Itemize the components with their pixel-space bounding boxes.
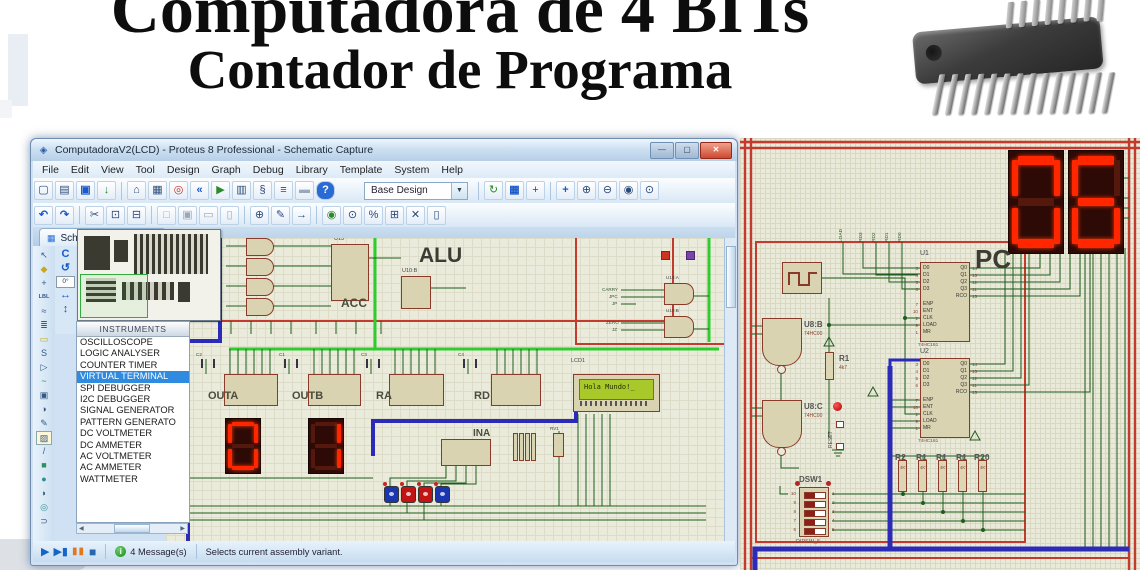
marker-tool-icon[interactable]: ⊃ [36, 515, 52, 529]
u1-d-pins: D0 D1 D2 D3 [923, 265, 929, 293]
minimize-button[interactable]: — [650, 142, 674, 159]
lcd-text: Hola Mundo!_ [580, 380, 653, 391]
grid-toggle-icon[interactable]: ▦ [505, 181, 524, 200]
segment-g [1078, 198, 1114, 207]
reset-button [833, 402, 842, 411]
segment-g [232, 444, 254, 449]
left-edge-artifact [8, 34, 28, 106]
u2-q-pins: Q0 Q1 Q2 Q3 [955, 361, 967, 389]
instruments-panel: INSTRUMENTS OSCILLOSCOPE LOGIC ANALYSER … [76, 321, 190, 523]
instrument-logic-analyser[interactable]: LOGIC ANALYSER [77, 348, 189, 359]
terminal-load: LOAD [839, 206, 844, 242]
segment-e [1012, 208, 1018, 244]
segment-d [232, 466, 254, 471]
instruments-header: INSTRUMENTS [77, 322, 189, 337]
u2-d-pin-numbers: 3 4 5 6 [906, 361, 918, 389]
orientation-toolbar: C ↺ 0° ↔ ↕ [55, 246, 76, 334]
rd-label: RD [474, 390, 490, 402]
u2-part: 74HC161 [918, 439, 938, 444]
segment-c [1114, 208, 1120, 244]
instrument-counter-timer[interactable]: COUNTER TIMER [77, 360, 189, 371]
lcd1-ref: LCD1 [571, 358, 585, 364]
menu-library[interactable]: Library [296, 164, 328, 176]
u1-rco-number: 15 [972, 293, 984, 300]
pullup-value-2: 4K7 [920, 465, 927, 470]
home-page-icon[interactable]: ⌂ [127, 181, 146, 200]
led-blue-1[interactable] [384, 486, 399, 503]
menu-debug[interactable]: Debug [253, 164, 284, 176]
c2-label: C2 [196, 352, 202, 357]
instrument-dc-ammeter[interactable]: DC AMMETER [77, 440, 189, 451]
capacitor-c3[interactable] [366, 359, 380, 368]
segment-e [1072, 208, 1078, 244]
scroll-right-icon[interactable]: ▶ [180, 525, 187, 532]
rv1-label: RV1 [550, 426, 559, 431]
new-project-icon[interactable]: ▢ [34, 181, 53, 200]
search-tag-icon[interactable]: ⊙ [343, 206, 362, 225]
instrument-pattern-generator[interactable]: PATTERN GENERATO [77, 417, 189, 428]
segment-f [1012, 160, 1018, 196]
canvas-vertical-scrollbar[interactable] [724, 238, 736, 541]
segment-f [228, 424, 232, 443]
menu-bar: File Edit View Tool Design Graph Debug L… [33, 161, 735, 178]
block-delete-icon[interactable]: ▯ [220, 206, 239, 225]
instrument-ac-voltmeter[interactable]: AC VOLTMETER [77, 451, 189, 462]
segment-g [315, 444, 337, 449]
segment-a [1078, 156, 1114, 165]
pc-7seg-tens [1008, 150, 1064, 254]
bom-icon[interactable]: § [253, 181, 272, 200]
r1-value: 4k7 [839, 365, 847, 371]
program-counter-zoom-panel: LOAD RD3 RD2 RD1 RD0 PC U1 D0 D1 D2 D3 3… [740, 138, 1140, 570]
cut-icon[interactable]: ✂ [85, 206, 104, 225]
u8b-nand-gate [762, 318, 802, 366]
tab-schematic-icon: ▦ [47, 233, 56, 244]
wire-autorouter-icon[interactable]: ◉ [322, 206, 341, 225]
schematic-capture-icon[interactable]: ▦ [148, 181, 167, 200]
led-blue-2[interactable] [435, 486, 450, 503]
signal-zero: ZERO [606, 320, 619, 325]
rewind-icon[interactable]: « [190, 181, 209, 200]
pullup-ref-4: R1 [956, 452, 967, 462]
segment-b [1054, 160, 1060, 196]
window-titlebar[interactable]: ◈ ComputadoraV2(LCD) - Proteus 8 Profess… [31, 139, 737, 161]
capacitor-c2[interactable] [201, 359, 215, 368]
zoom-all-icon[interactable]: ◉ [619, 181, 638, 200]
outb-7seg-display[interactable] [308, 418, 344, 474]
u19a-gate[interactable] [664, 283, 694, 305]
banner: Computadora de 4 BITs Contador de Progra… [40, 0, 880, 98]
u2-q-pin-numbers: 14 13 12 11 [972, 361, 984, 389]
u1-rco-pin: RCO [953, 293, 967, 300]
remove-sheet-icon[interactable]: ✕ [406, 206, 425, 225]
undo-icon[interactable]: ↶ [34, 206, 53, 225]
terminal-mode-icon[interactable]: S [36, 347, 52, 361]
pullup-value-4: 4K7 [960, 465, 967, 470]
u19b-gate[interactable] [664, 316, 694, 338]
menu-edit[interactable]: Edit [71, 164, 89, 176]
ra-register-chip[interactable] [389, 374, 444, 406]
component-mode-icon[interactable]: ▭ [36, 333, 52, 347]
instrument-oscilloscope[interactable]: OSCILLOSCOPE [77, 337, 189, 348]
rotation-angle-field[interactable]: 0° [56, 276, 75, 288]
segment-d [1078, 239, 1114, 248]
u1-ctrl-pin-numbers: 7 10 2 9 1 [906, 301, 918, 336]
clock-source [782, 262, 822, 294]
line-tool-icon[interactable]: / [36, 445, 52, 459]
reset-label: RESET [828, 422, 834, 448]
stop-button[interactable]: ■ [89, 544, 96, 560]
dsw1-part: DIPSW_5 [796, 539, 820, 545]
dsw1-pins-left: 10 9 8 7 6 [784, 489, 796, 534]
minimap-viewport[interactable] [80, 274, 148, 318]
design-overview-minimap[interactable] [77, 229, 221, 321]
outa-label: OUTA [208, 390, 238, 402]
terminal-rd2: RD2 [872, 214, 877, 242]
pc-7seg-ones [1068, 150, 1124, 254]
and-gate-1[interactable] [246, 238, 274, 256]
pullup-ref-3: R1 [936, 452, 947, 462]
schematic-canvas[interactable]: U13 U10:B ACC ALU U19:A U19:B CARRY JPC … [166, 238, 724, 541]
menu-system[interactable]: System [394, 164, 429, 176]
graph-mode-icon[interactable]: ~ [36, 375, 52, 389]
u13-ref: U13 [334, 238, 344, 242]
mirror-vertical-icon[interactable]: ↕ [63, 303, 69, 316]
paste-icon[interactable]: ⊟ [127, 206, 146, 225]
terminal-rd1: RD1 [885, 214, 890, 242]
assembly-variant-dropdown[interactable]: Base Design ▼ [364, 182, 468, 200]
step-button[interactable]: ▶▮ [53, 544, 68, 560]
pullup-value-1: 4K7 [900, 465, 907, 470]
segment-d [315, 466, 337, 471]
segment-a [1018, 156, 1054, 165]
segment-g [1018, 198, 1054, 207]
goto-sheet-icon[interactable]: ▯ [427, 206, 446, 225]
pan-icon[interactable]: + [556, 181, 575, 200]
dip-ic-chip-photo [895, 2, 1130, 130]
r1-resistor [825, 352, 834, 380]
menu-file[interactable]: File [42, 164, 59, 176]
property-assignment-icon[interactable]: % [364, 206, 383, 225]
box-tool-icon[interactable]: ■ [36, 459, 52, 473]
simulation-status-bar: ▶ ▶▮ ▮▮ ■ i 4 Message(s) Selects current… [33, 541, 735, 562]
pullup-value-5: 4K7 [980, 465, 987, 470]
u8c-ref: U8:C [804, 402, 823, 411]
instruments-scrollbar[interactable]: ◀ ▶ [76, 523, 188, 534]
block-copy-icon[interactable]: □ [157, 206, 176, 225]
u10b-ref: U10:B [402, 268, 417, 274]
lcd-display[interactable]: Hola Mundo!_ [573, 374, 660, 412]
proteus-logo-icon: ◈ [37, 144, 50, 157]
make-device-icon[interactable]: ✎ [271, 206, 290, 225]
acc-label: ACC [341, 296, 367, 310]
messages-count[interactable]: 4 Message(s) [130, 547, 186, 557]
dsw1-pins-right: 1 2 3 4 5 [832, 489, 842, 534]
and-gate-4[interactable] [246, 298, 274, 316]
outb-label: OUTB [292, 390, 323, 402]
u1-d-pin-numbers: 3 4 5 6 [906, 265, 918, 293]
variant-value: Base Design [371, 185, 428, 196]
pullup-ref-1: R2 [895, 452, 906, 462]
pullup-ref-2: R1 [916, 452, 927, 462]
rv1-potentiometer[interactable] [553, 433, 564, 457]
resistor-pack[interactable] [513, 433, 535, 459]
virtual-instrument-mode-icon[interactable]: ▨ [36, 431, 52, 445]
menu-view[interactable]: View [101, 164, 124, 176]
menu-design[interactable]: Design [167, 164, 200, 176]
menu-tool[interactable]: Tool [136, 164, 155, 176]
path-tool-icon[interactable]: ◎ [36, 501, 52, 515]
menu-help[interactable]: Help [441, 164, 463, 176]
capacitor-c1[interactable] [284, 359, 298, 368]
save-project-icon[interactable]: ▣ [76, 181, 95, 200]
dsw1-dip-switch [799, 487, 829, 537]
window-title: ComputadoraV2(LCD) - Proteus 8 Professio… [55, 144, 373, 156]
instrument-spi-debugger[interactable]: SPI DEBUGGER [77, 383, 189, 394]
scroll-left-icon[interactable]: ◀ [77, 525, 84, 532]
mode-toolbar: ↖ ◆ + LBL ≈ ≣ ▭ S ▷ ~ ▣ ◑ ✎ ▨ / ■ ● ◗ ◎ … [33, 246, 55, 541]
segment-c [1054, 208, 1060, 244]
terminal-rd0: RD0 [898, 214, 903, 242]
segment-d [1018, 239, 1054, 248]
u2-ctrl-pins: ENP ENT CLK LOAD MR [923, 397, 937, 432]
ina-buffer-chip[interactable] [441, 439, 491, 466]
text-script-mode-icon[interactable]: LBL [36, 291, 52, 305]
signal-jp: JP [612, 301, 617, 306]
mirror-horizontal-icon[interactable]: ↔ [60, 289, 71, 302]
signal-jz: JZ [612, 327, 617, 332]
device-pin-mode-icon[interactable]: ▷ [36, 361, 52, 375]
zoom-in-icon[interactable]: ⊕ [577, 181, 596, 200]
menu-graph[interactable]: Graph [212, 164, 241, 176]
and-gate-3[interactable] [246, 278, 274, 296]
instrument-virtual-terminal[interactable]: VIRTUAL TERMINAL [77, 371, 189, 382]
open-project-icon[interactable]: ▤ [55, 181, 74, 200]
zoom-area-icon[interactable]: ⊙ [640, 181, 659, 200]
ina-label: INA [473, 428, 490, 439]
pullup-value-3: 4K7 [940, 465, 947, 470]
instrument-dc-voltmeter[interactable]: DC VOLTMETER [77, 428, 189, 439]
u2-ctrl-pin-numbers: 7 10 2 9 1 [906, 397, 918, 432]
led-red-2[interactable] [418, 486, 433, 503]
square-wave-icon [783, 263, 823, 295]
u2-ref: U2 [920, 348, 929, 355]
play-button[interactable]: ▶ [41, 544, 49, 560]
lcd-screen: Hola Mundo!_ [579, 379, 654, 400]
help-icon[interactable]: ? [316, 181, 335, 200]
instrument-wattmeter[interactable]: WATTMETER [77, 474, 189, 485]
dropdown-arrow-icon[interactable]: ▼ [451, 183, 467, 199]
status-hint: Selects current assembly variant. [206, 547, 343, 557]
ra-label: RA [376, 390, 392, 402]
capacitor-c4[interactable] [463, 359, 477, 368]
maximize-button[interactable]: ▢ [675, 142, 699, 159]
bus-mode-icon[interactable]: ≈ [36, 305, 52, 319]
segment-c [337, 449, 341, 468]
main-toolbar: ▢ ▤ ▣ ↓ ⌂ ▦ ◎ « ▶ ▥ § ≡ ▬ ? Base Design … [33, 178, 735, 203]
pullup-ref-5: R20 [974, 452, 990, 462]
u8c-bubble [777, 447, 786, 456]
segment-e [311, 449, 315, 468]
signal-carry: CARRY [602, 287, 618, 292]
segment-e [228, 449, 232, 468]
pause-button[interactable]: ▮▮ [72, 544, 85, 560]
u8b-part: 74HC00 [804, 331, 822, 337]
segment-a [232, 422, 254, 427]
r1-ref: R1 [839, 354, 849, 363]
c4-label: C4 [458, 352, 464, 357]
u8c-nand-gate [762, 400, 802, 448]
dsw1-dot-left [795, 481, 800, 486]
menu-template[interactable]: Template [340, 164, 383, 176]
tape-recorder-mode-icon[interactable]: ▣ [36, 389, 52, 403]
generator-mode-icon[interactable]: ◑ [36, 403, 52, 417]
segment-a [315, 422, 337, 427]
instrument-signal-generator[interactable]: SIGNAL GENERATOR [77, 405, 189, 416]
arc-tool-icon[interactable]: ◗ [36, 487, 52, 501]
and-gate-2[interactable] [246, 258, 274, 276]
packaging-tool-icon[interactable]: → [292, 206, 311, 225]
circle-tool-icon[interactable]: ● [36, 473, 52, 487]
edit-toolbar: ↶ ↷ ✂ ⊡ ⊟ □ ▣ ▭ ▯ ⊕ ✎ → ◉ ⊙ % ⊞ ✕ ▯ [33, 203, 735, 227]
c3-label: C3 [361, 352, 367, 357]
properties-icon[interactable]: ≡ [274, 181, 293, 200]
c1-label: C1 [279, 352, 285, 357]
redraw-icon[interactable]: ↻ [484, 181, 503, 200]
left-edge-artifact-2 [0, 100, 12, 118]
u2-rco-number: 15 [972, 389, 984, 396]
banner-title-line2: Contador de Programa [40, 42, 880, 98]
design-explorer-icon[interactable]: ▥ [232, 181, 251, 200]
run-icon[interactable]: ▶ [211, 181, 230, 200]
junction-dot-mode-icon[interactable]: ◆ [36, 263, 52, 277]
led-red-1[interactable] [401, 486, 416, 503]
refresh-icon[interactable]: C [62, 248, 70, 261]
u1-ref: U1 [920, 250, 929, 257]
terminal-rd3: RD3 [859, 214, 864, 242]
segment-b [254, 424, 258, 443]
pcb-layout-icon[interactable]: ◎ [169, 181, 188, 200]
purple-indicator [686, 251, 695, 260]
new-sheet-icon[interactable]: ⊞ [385, 206, 404, 225]
block-move-icon[interactable]: ▣ [178, 206, 197, 225]
u1-q-pin-numbers: 14 13 12 11 [972, 265, 984, 293]
rotate-ccw-icon[interactable]: ↺ [61, 262, 70, 275]
outa-7seg-display[interactable] [225, 418, 261, 474]
u8b-ref: U8:B [804, 320, 823, 329]
signal-jpc: JPC [609, 294, 618, 299]
copy-icon[interactable]: ⊡ [106, 206, 125, 225]
alu-label: ALU [419, 244, 462, 268]
close-button[interactable]: ✕ [700, 142, 732, 159]
instrument-ac-ammeter[interactable]: AC AMMETER [77, 462, 189, 473]
wire-label-mode-icon[interactable]: + [36, 277, 52, 291]
rd-register-chip[interactable] [491, 374, 541, 406]
import-project-icon[interactable]: ↓ [97, 181, 116, 200]
segment-f [1072, 160, 1078, 196]
u10b-chip[interactable] [401, 276, 431, 309]
segment-c [254, 449, 258, 468]
dsw1-ref: DSW1 [799, 475, 822, 484]
zoom-out-icon[interactable]: ⊖ [598, 181, 617, 200]
u8b-bubble [777, 365, 786, 374]
instrument-i2c-debugger[interactable]: I2C DEBUGGER [77, 394, 189, 405]
proteus-window: ◈ ComputadoraV2(LCD) - Proteus 8 Profess… [30, 138, 738, 566]
selection-mode-icon[interactable]: ↖ [36, 249, 52, 263]
banner-title-line1: Computadora de 4 BITs [40, 0, 880, 40]
block-rotate-icon[interactable]: ▭ [199, 206, 218, 225]
dsw1-dot-right [826, 481, 831, 486]
reset-pad-top [836, 421, 844, 428]
pick-device-icon[interactable]: ⊕ [250, 206, 269, 225]
u2-d-pins: D0 D1 D2 D3 [923, 361, 929, 389]
acc-register-chip[interactable] [331, 244, 369, 301]
segment-b [1114, 160, 1120, 196]
origin-icon[interactable]: + [526, 181, 545, 200]
messages-info-icon[interactable]: i [115, 546, 126, 557]
reset-pad-bottom [836, 443, 844, 450]
voltage-probe-mode-icon[interactable]: ✎ [36, 417, 52, 431]
scrollbar-thumb[interactable] [114, 524, 150, 533]
notes-icon[interactable]: ▬ [295, 181, 314, 200]
red-indicator [661, 251, 670, 260]
subcircuit-mode-icon[interactable]: ≣ [36, 319, 52, 333]
u2-rco-pin: RCO [953, 389, 967, 396]
u19a-ref: U19:A [666, 275, 679, 280]
u1-q-pins: Q0 Q1 Q2 Q3 [955, 265, 967, 293]
segment-b [337, 424, 341, 443]
redo-icon[interactable]: ↷ [55, 206, 74, 225]
u19b-ref: U19:B [666, 308, 679, 313]
segment-f [311, 424, 315, 443]
u8c-part: 74HC00 [804, 413, 822, 419]
u1-ctrl-pins: ENP ENT CLK LOAD MR [923, 301, 937, 336]
